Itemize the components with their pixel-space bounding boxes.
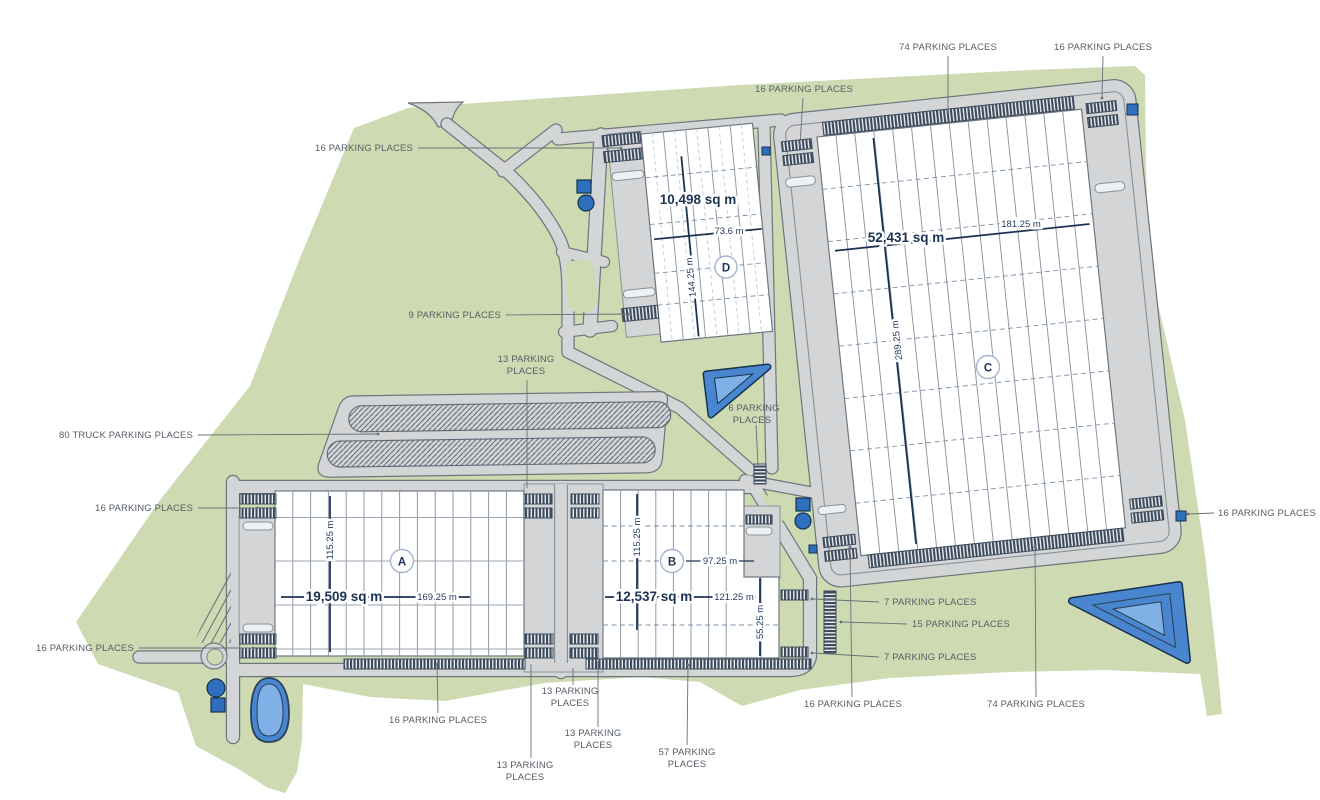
svg-text:13 PARKING: 13 PARKING [542,686,599,697]
svg-text:D: D [722,263,730,275]
svg-text:16 PARKING PLACES: 16 PARKING PLACES [1054,42,1152,53]
svg-text:PLACES: PLACES [551,698,589,709]
svg-text:52,431 sq m: 52,431 sq m [868,230,945,245]
svg-text:7 PARKING PLACES: 7 PARKING PLACES [884,597,977,608]
svg-text:16 PARKING PLACES: 16 PARKING PLACES [755,84,853,95]
svg-text:115.25 m: 115.25 m [325,520,336,559]
svg-text:A: A [398,557,406,569]
svg-text:6 PARKING: 6 PARKING [728,403,779,414]
svg-text:PLACES: PLACES [733,415,771,426]
svg-text:169.25 m: 169.25 m [417,592,457,603]
svg-text:55.25 m: 55.25 m [755,605,766,639]
svg-text:115.25 m: 115.25 m [632,517,643,556]
svg-text:181.25 m: 181.25 m [1001,219,1041,230]
svg-text:9 PARKING PLACES: 9 PARKING PLACES [408,310,501,321]
svg-text:16 PARKING PLACES: 16 PARKING PLACES [36,643,134,654]
svg-text:16 PARKING PLACES: 16 PARKING PLACES [389,715,487,726]
svg-text:19,509 sq m: 19,509 sq m [306,589,383,604]
svg-text:73.6 m: 73.6 m [714,226,743,237]
svg-text:PLACES: PLACES [668,759,706,770]
svg-text:74 PARKING PLACES: 74 PARKING PLACES [987,699,1085,710]
svg-text:16 PARKING PLACES: 16 PARKING PLACES [315,143,413,154]
svg-text:10,498 sq m: 10,498 sq m [660,192,737,207]
svg-text:C: C [984,363,992,375]
svg-text:PLACES: PLACES [574,740,612,751]
svg-text:80 TRUCK PARKING PLACES: 80 TRUCK PARKING PLACES [59,430,193,441]
svg-text:13 PARKING: 13 PARKING [565,728,622,739]
svg-text:16 PARKING PLACES: 16 PARKING PLACES [95,503,193,514]
svg-text:121.25 m: 121.25 m [714,592,754,603]
svg-text:PLACES: PLACES [507,366,545,377]
svg-text:B: B [668,557,676,569]
svg-text:16 PARKING PLACES: 16 PARKING PLACES [804,699,902,710]
svg-text:13 PARKING: 13 PARKING [498,354,555,365]
svg-text:7 PARKING PLACES: 7 PARKING PLACES [884,652,977,663]
svg-text:12,537 sq m: 12,537 sq m [616,589,693,604]
svg-text:15 PARKING PLACES: 15 PARKING PLACES [912,619,1010,630]
svg-text:13 PARKING: 13 PARKING [497,760,554,771]
svg-text:74 PARKING PLACES: 74 PARKING PLACES [899,42,997,53]
svg-text:97.25 m: 97.25 m [703,556,737,567]
svg-text:PLACES: PLACES [506,772,544,783]
svg-text:57 PARKING: 57 PARKING [659,747,716,758]
svg-text:16 PARKING PLACES: 16 PARKING PLACES [1218,508,1316,519]
